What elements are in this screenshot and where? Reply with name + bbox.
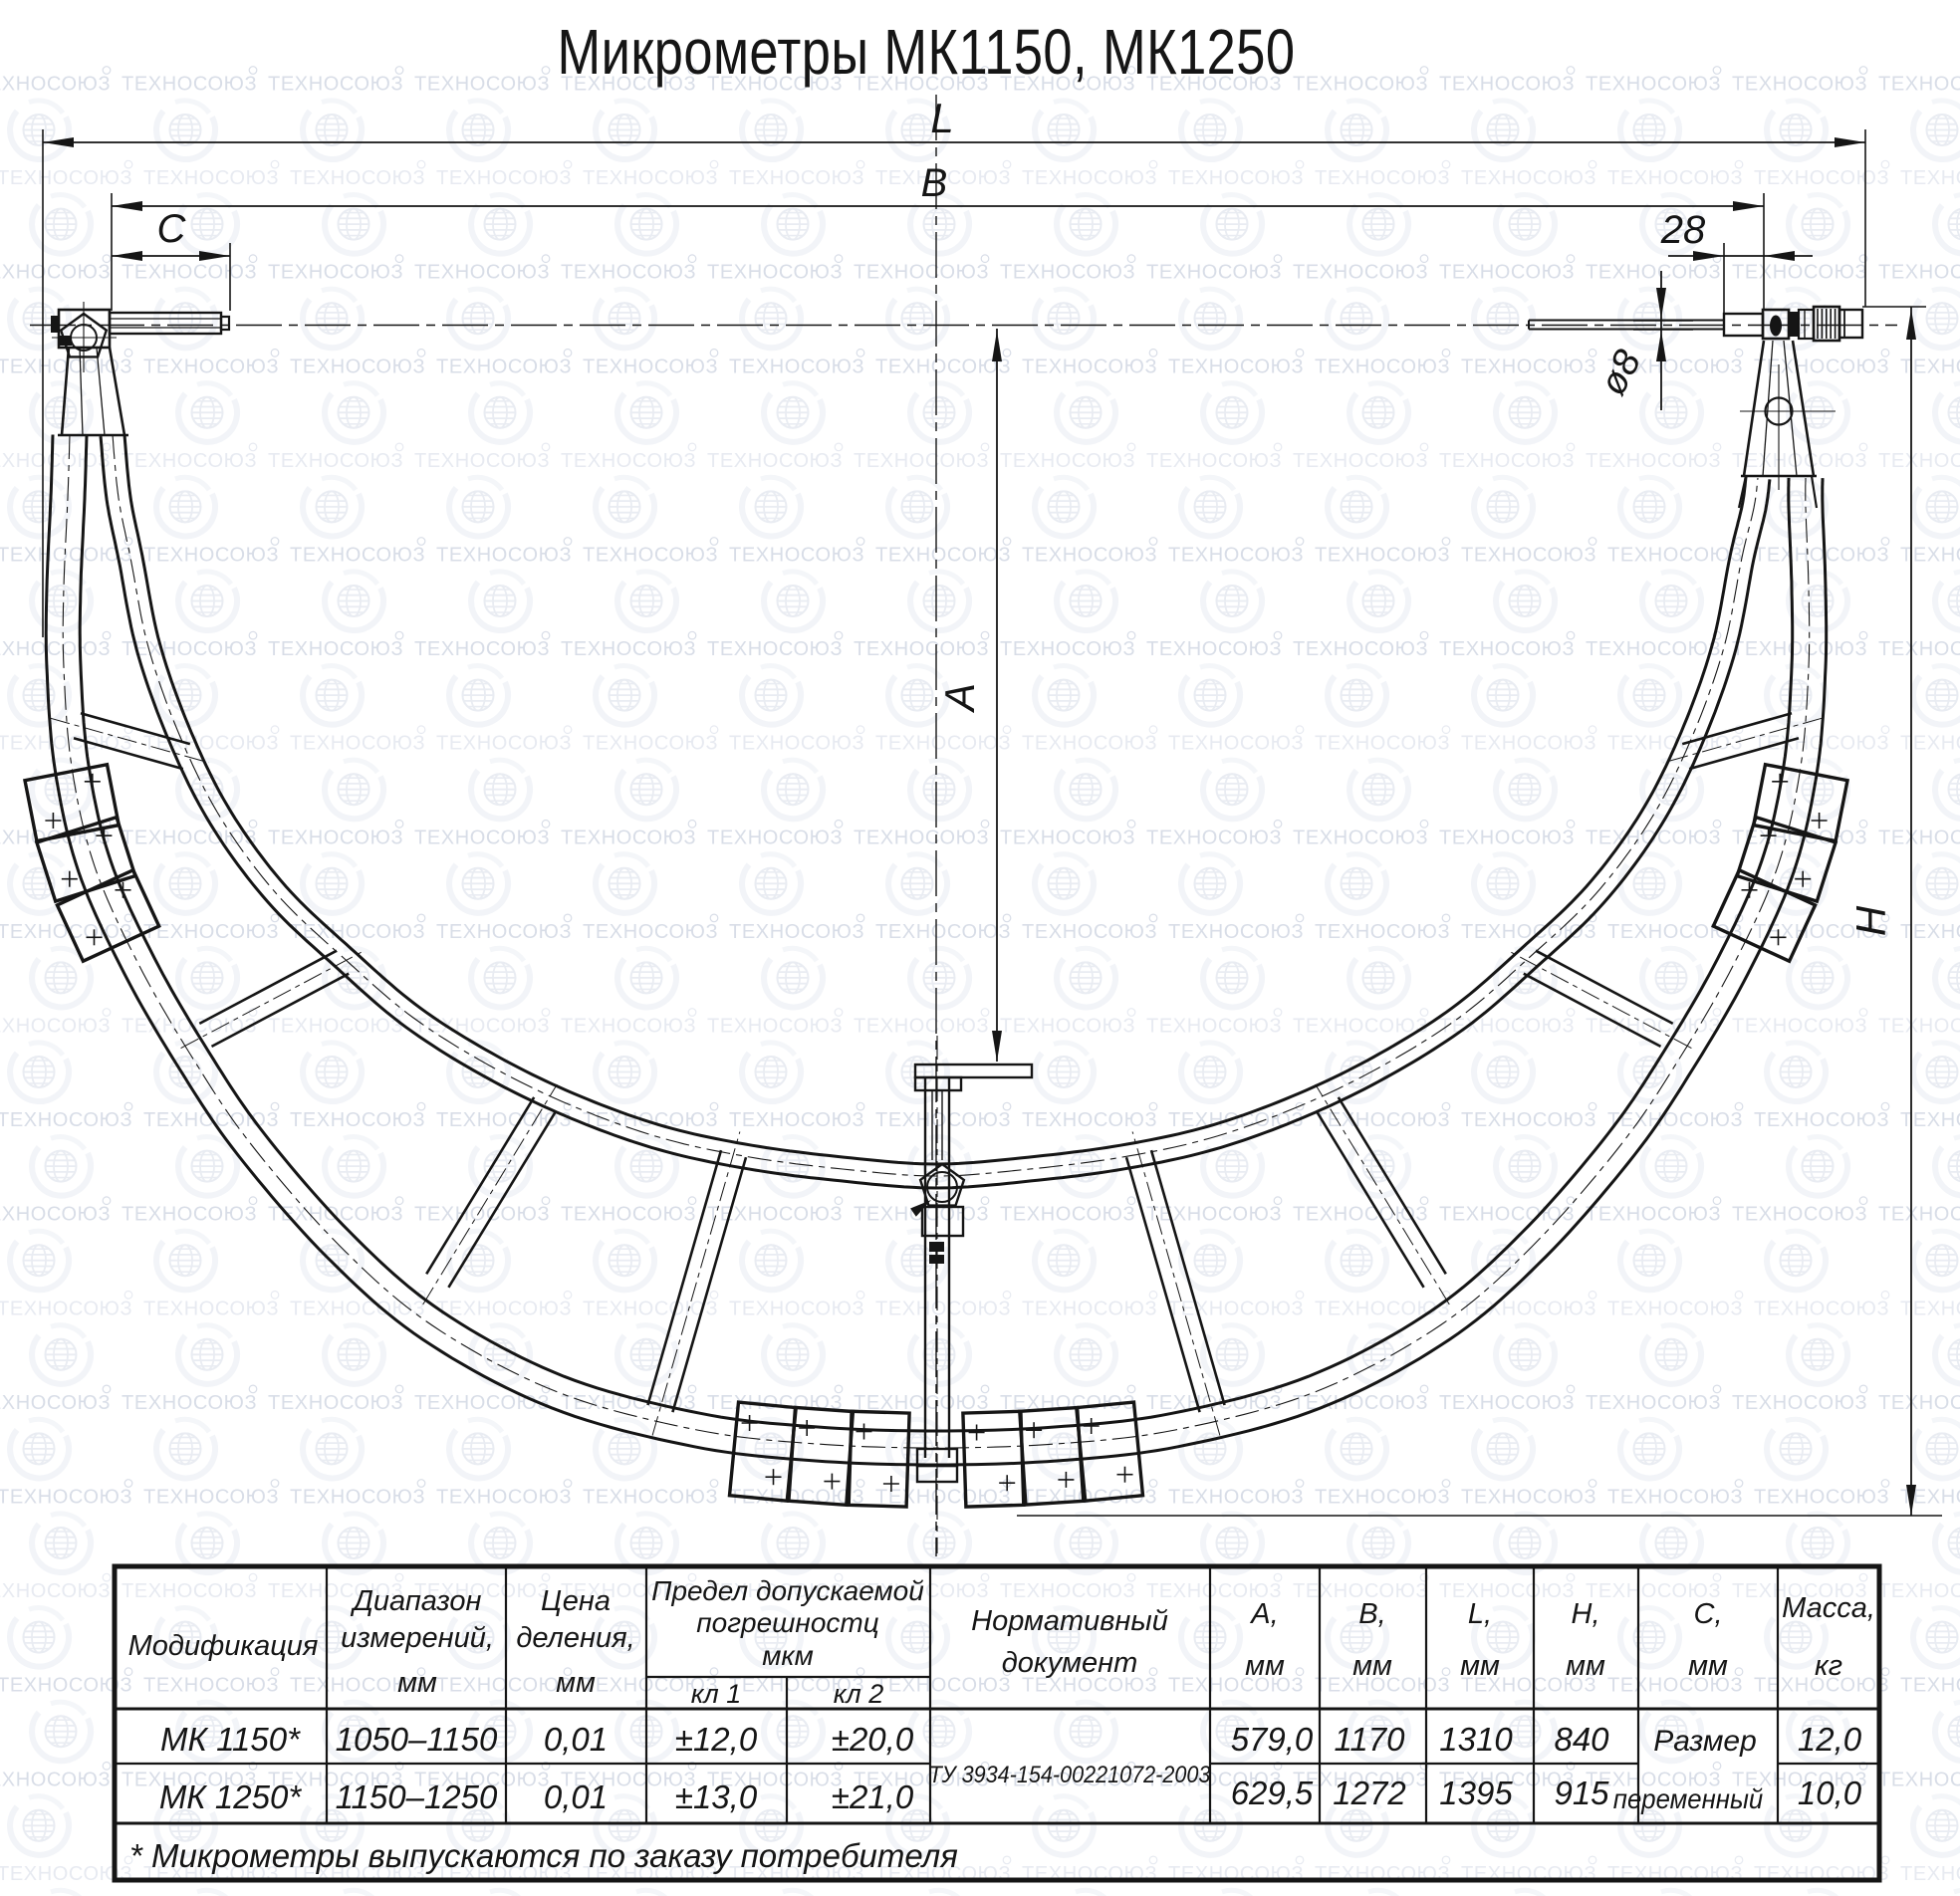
svg-text:ТЕХНОСОЮЗ: ТЕХНОСОЮЗ <box>0 1392 111 1414</box>
svg-text:ТЕХНОСОЮЗ: ТЕХНОСОЮЗ <box>1293 1204 1428 1226</box>
svg-text:ТЕХНОСОЮЗ: ТЕХНОСОЮЗ <box>1900 733 1960 755</box>
svg-text:ТЕХНОСОЮЗ: ТЕХНОСОЮЗ <box>1732 1016 1867 1038</box>
svg-text:ТЕХНОСОЮЗ: ТЕХНОСОЮЗ <box>1461 355 1596 377</box>
svg-text:ТЕХНОСОЮЗ: ТЕХНОСОЮЗ <box>1461 545 1596 567</box>
svg-text:ТЕХНОСОЮЗ: ТЕХНОСОЮЗ <box>1000 1580 1135 1602</box>
svg-text:ТЕХНОСОЮЗ: ТЕХНОСОЮЗ <box>1168 167 1304 189</box>
svg-text:ТЕХНОСОЮЗ: ТЕХНОСОЮЗ <box>1878 74 1960 96</box>
svg-text:915: 915 <box>1554 1775 1609 1811</box>
svg-text:ТЕХНОСОЮЗ: ТЕХНОСОЮЗ <box>1461 167 1596 189</box>
svg-text:ТУ 3934-154-00221072-2003: ТУ 3934-154-00221072-2003 <box>929 1761 1211 1787</box>
svg-text:ТЕХНОСОЮЗ: ТЕХНОСОЮЗ <box>414 450 550 472</box>
svg-text:ТЕХНОСОЮЗ: ТЕХНОСОЮЗ <box>290 1487 425 1509</box>
svg-text:1170: 1170 <box>1335 1721 1406 1758</box>
svg-text:Микрометры МК1150, МК1250: Микрометры МК1150, МК1250 <box>558 17 1296 88</box>
svg-text:ТЕХНОСОЮЗ: ТЕХНОСОЮЗ <box>0 1487 132 1509</box>
svg-text:ТЕХНОСОЮЗ: ТЕХНОСОЮЗ <box>1878 1769 1960 1790</box>
svg-text:ТЕХНОСОЮЗ: ТЕХНОСОЮЗ <box>143 355 279 377</box>
svg-text:ТЕХНОСОЮЗ: ТЕХНОСОЮЗ <box>122 1580 257 1602</box>
svg-text:ТЕХНОСОЮЗ: ТЕХНОСОЮЗ <box>854 450 989 472</box>
svg-text:ТЕХНОСОЮЗ: ТЕХНОСОЮЗ <box>1022 1298 1157 1319</box>
svg-text:ТЕХНОСОЮЗ: ТЕХНОСОЮЗ <box>729 1298 864 1319</box>
svg-text:ТЕХНОСОЮЗ: ТЕХНОСОЮЗ <box>0 1016 111 1038</box>
svg-text:ТЕХНОСОЮЗ: ТЕХНОСОЮЗ <box>561 638 696 660</box>
svg-text:мм: мм <box>556 1667 596 1699</box>
svg-text:ТЕХНОСОЮЗ: ТЕХНОСОЮЗ <box>0 733 132 755</box>
svg-text:ТЕХНОСОЮЗ: ТЕХНОСОЮЗ <box>1878 1016 1960 1038</box>
svg-text:мкм: мкм <box>762 1640 814 1671</box>
svg-text:ТЕХНОСОЮЗ: ТЕХНОСОЮЗ <box>1878 262 1960 284</box>
svg-text:ТЕХНОСОЮЗ: ТЕХНОСОЮЗ <box>1439 74 1575 96</box>
svg-text:ТЕХНОСОЮЗ: ТЕХНОСОЮЗ <box>290 1298 425 1319</box>
svg-text:ТЕХНОСОЮЗ: ТЕХНОСОЮЗ <box>0 1109 132 1131</box>
svg-text:кл 2: кл 2 <box>834 1679 884 1709</box>
svg-text:ТЕХНОСОЮЗ: ТЕХНОСОЮЗ <box>1878 450 1960 472</box>
svg-text:±21,0: ±21,0 <box>832 1778 914 1815</box>
svg-text:ТЕХНОСОЮЗ: ТЕХНОСОЮЗ <box>1586 450 1721 472</box>
svg-text:ТЕХНОСОЮЗ: ТЕХНОСОЮЗ <box>1146 638 1282 660</box>
svg-text:Предел допускаемой: Предел допускаемой <box>651 1575 924 1606</box>
svg-text:L,: L, <box>1468 1598 1492 1630</box>
svg-text:ТЕХНОСОЮЗ: ТЕХНОСОЮЗ <box>436 1487 572 1509</box>
svg-text:L: L <box>930 95 953 141</box>
svg-text:погрешностц: погрешностц <box>696 1607 879 1638</box>
svg-text:ТЕХНОСОЮЗ: ТЕХНОСОЮЗ <box>1168 545 1304 567</box>
svg-text:ТЕХНОСОЮЗ: ТЕХНОСОЮЗ <box>729 545 864 567</box>
svg-text:документ: документ <box>1002 1647 1137 1679</box>
svg-text:Цена: Цена <box>541 1585 611 1617</box>
svg-text:ТЕХНОСОЮЗ: ТЕХНОСОЮЗ <box>143 921 279 943</box>
svg-text:ТЕХНОСОЮЗ: ТЕХНОСОЮЗ <box>268 262 403 284</box>
svg-text:ТЕХНОСОЮЗ: ТЕХНОСОЮЗ <box>1315 1109 1450 1131</box>
svg-text:ТЕХНОСОЮЗ: ТЕХНОСОЮЗ <box>436 167 572 189</box>
svg-text:±12,0: ±12,0 <box>675 1721 758 1758</box>
svg-text:ТЕХНОСОЮЗ: ТЕХНОСОЮЗ <box>1022 733 1157 755</box>
svg-text:ТЕХНОСОЮЗ: ТЕХНОСОЮЗ <box>583 921 718 943</box>
svg-text:ТЕХНОСОЮЗ: ТЕХНОСОЮЗ <box>1461 1109 1596 1131</box>
svg-text:ТЕХНОСОЮЗ: ТЕХНОСОЮЗ <box>854 638 989 660</box>
svg-text:28: 28 <box>1660 208 1706 252</box>
svg-text:ТЕХНОСОЮЗ: ТЕХНОСОЮЗ <box>436 733 572 755</box>
svg-text:Диапазон: Диапазон <box>350 1585 481 1617</box>
svg-text:ТЕХНОСОЮЗ: ТЕХНОСОЮЗ <box>1315 1487 1450 1509</box>
svg-text:ТЕХНОСОЮЗ: ТЕХНОСОЮЗ <box>1000 450 1135 472</box>
svg-text:ТЕХНОСОЮЗ: ТЕХНОСОЮЗ <box>1878 1580 1960 1602</box>
svg-text:ТЕХНОСОЮЗ: ТЕХНОСОЮЗ <box>1293 1016 1428 1038</box>
svg-text:ТЕХНОСОЮЗ: ТЕХНОСОЮЗ <box>1146 1016 1282 1038</box>
svg-text:ТЕХНОСОЮЗ: ТЕХНОСОЮЗ <box>1878 827 1960 848</box>
svg-text:ТЕХНОСОЮЗ: ТЕХНОСОЮЗ <box>1168 1298 1304 1319</box>
svg-text:ТЕХНОСОЮЗ: ТЕХНОСОЮЗ <box>122 827 257 848</box>
svg-text:ТЕХНОСОЮЗ: ТЕХНОСОЮЗ <box>1315 167 1450 189</box>
svg-text:ТЕХНОСОЮЗ: ТЕХНОСОЮЗ <box>1878 638 1960 660</box>
svg-text:ТЕХНОСОЮЗ: ТЕХНОСОЮЗ <box>122 1392 257 1414</box>
svg-text:ТЕХНОСОЮЗ: ТЕХНОСОЮЗ <box>729 733 864 755</box>
svg-text:ТЕХНОСОЮЗ: ТЕХНОСОЮЗ <box>414 827 550 848</box>
svg-text:ТЕХНОСОЮЗ: ТЕХНОСОЮЗ <box>1439 1392 1575 1414</box>
svg-text:ТЕХНОСОЮЗ: ТЕХНОСОЮЗ <box>1022 921 1157 943</box>
svg-text:ТЕХНОСОЮЗ: ТЕХНОСОЮЗ <box>1439 1580 1575 1602</box>
svg-text:ТЕХНОСОЮЗ: ТЕХНОСОЮЗ <box>268 450 403 472</box>
svg-text:ТЕХНОСОЮЗ: ТЕХНОСОЮЗ <box>143 1487 279 1509</box>
svg-text:ТЕХНОСОЮЗ: ТЕХНОСОЮЗ <box>1732 1204 1867 1226</box>
svg-text:ТЕХНОСОЮЗ: ТЕХНОСОЮЗ <box>1732 1392 1867 1414</box>
svg-text:ТЕХНОСОЮЗ: ТЕХНОСОЮЗ <box>875 733 1011 755</box>
svg-text:ТЕХНОСОЮЗ: ТЕХНОСОЮЗ <box>1900 355 1960 377</box>
svg-text:ТЕХНОСОЮЗ: ТЕХНОСОЮЗ <box>1607 545 1743 567</box>
svg-text:ТЕХНОСОЮЗ: ТЕХНОСОЮЗ <box>0 74 111 96</box>
svg-text:ТЕХНОСОЮЗ: ТЕХНОСОЮЗ <box>854 1016 989 1038</box>
svg-text:ТЕХНОСОЮЗ: ТЕХНОСОЮЗ <box>561 827 696 848</box>
svg-text:ТЕХНОСОЮЗ: ТЕХНОСОЮЗ <box>707 1016 843 1038</box>
svg-text:12,0: 12,0 <box>1798 1721 1862 1758</box>
svg-text:ТЕХНОСОЮЗ: ТЕХНОСОЮЗ <box>561 262 696 284</box>
svg-text:МК 1250*: МК 1250* <box>159 1778 303 1815</box>
svg-text:ТЕХНОСОЮЗ: ТЕХНОСОЮЗ <box>1168 355 1304 377</box>
svg-text:С,: С, <box>1694 1598 1723 1630</box>
svg-text:ТЕХНОСОЮЗ: ТЕХНОСОЮЗ <box>1586 638 1721 660</box>
svg-text:ТЕХНОСОЮЗ: ТЕХНОСОЮЗ <box>583 1298 718 1319</box>
svg-text:ТЕХНОСОЮЗ: ТЕХНОСОЮЗ <box>1878 1204 1960 1226</box>
svg-text:* Микрометры выпускаются по: * Микрометры выпускаются по заказу потре… <box>129 1837 958 1874</box>
svg-text:мм: мм <box>1688 1650 1728 1682</box>
svg-text:ТЕХНОСОЮЗ: ТЕХНОСОЮЗ <box>707 638 843 660</box>
svg-text:ТЕХНОСОЮЗ: ТЕХНОСОЮЗ <box>583 1109 718 1131</box>
svg-text:ТЕХНОСОЮЗ: ТЕХНОСОЮЗ <box>0 1580 111 1602</box>
svg-text:ТЕХНОСОЮЗ: ТЕХНОСОЮЗ <box>1293 827 1428 848</box>
svg-text:1310: 1310 <box>1439 1721 1513 1758</box>
svg-text:переменный: переменный <box>1613 1783 1763 1814</box>
svg-text:ТЕХНОСОЮЗ: ТЕХНОСОЮЗ <box>561 1016 696 1038</box>
svg-text:ТЕХНОСОЮЗ: ТЕХНОСОЮЗ <box>1439 1204 1575 1226</box>
svg-text:ТЕХНОСОЮЗ: ТЕХНОСОЮЗ <box>1439 262 1575 284</box>
svg-text:ТЕХНОСОЮЗ: ТЕХНОСОЮЗ <box>290 545 425 567</box>
svg-text:ТЕХНОСОЮЗ: ТЕХНОСОЮЗ <box>1900 1675 1960 1697</box>
svg-text:ТЕХНОСОЮЗ: ТЕХНОСОЮЗ <box>1586 1392 1721 1414</box>
svg-text:ТЕХНОСОЮЗ: ТЕХНОСОЮЗ <box>1900 1298 1960 1319</box>
svg-text:А,: А, <box>1249 1598 1278 1630</box>
svg-text:ТЕХНОСОЮЗ: ТЕХНОСОЮЗ <box>1022 167 1157 189</box>
svg-text:840: 840 <box>1554 1721 1609 1758</box>
svg-text:ТЕХНОСОЮЗ: ТЕХНОСОЮЗ <box>1146 450 1282 472</box>
svg-text:ТЕХНОСОЮЗ: ТЕХНОСОЮЗ <box>1022 355 1157 377</box>
svg-text:10,0: 10,0 <box>1798 1775 1862 1811</box>
svg-text:мм: мм <box>1352 1650 1392 1682</box>
svg-text:кл 1: кл 1 <box>691 1679 742 1709</box>
svg-text:0,01: 0,01 <box>544 1778 608 1815</box>
svg-text:ТЕХНОСОЮЗ: ТЕХНОСОЮЗ <box>583 167 718 189</box>
svg-text:деления,: деления, <box>516 1622 634 1654</box>
svg-text:ТЕХНОСОЮЗ: ТЕХНОСОЮЗ <box>143 545 279 567</box>
svg-text:ТЕХНОСОЮЗ: ТЕХНОСОЮЗ <box>268 638 403 660</box>
svg-text:ТЕХНОСОЮЗ: ТЕХНОСОЮЗ <box>1168 921 1304 943</box>
svg-text:ТЕХНОСОЮЗ: ТЕХНОСОЮЗ <box>583 1487 718 1509</box>
svg-text:629,5: 629,5 <box>1231 1775 1314 1811</box>
svg-text:ТЕХНОСОЮЗ: ТЕХНОСОЮЗ <box>0 167 132 189</box>
svg-text:ТЕХНОСОЮЗ: ТЕХНОСОЮЗ <box>143 167 279 189</box>
svg-text:±20,0: ±20,0 <box>832 1721 914 1758</box>
svg-text:В,: В, <box>1358 1598 1385 1630</box>
svg-text:ТЕХНОСОЮЗ: ТЕХНОСОЮЗ <box>1293 262 1428 284</box>
svg-text:ТЕХНОСОЮЗ: ТЕХНОСОЮЗ <box>1022 1109 1157 1131</box>
svg-text:В: В <box>921 161 948 205</box>
svg-text:ТЕХНОСОЮЗ: ТЕХНОСОЮЗ <box>414 1392 550 1414</box>
svg-text:ТЕХНОСОЮЗ: ТЕХНОСОЮЗ <box>1754 167 1889 189</box>
svg-text:мм: мм <box>1245 1650 1285 1682</box>
svg-text:ТЕХНОСОЮЗ: ТЕХНОСОЮЗ <box>1586 262 1721 284</box>
svg-text:ТЕХНОСОЮЗ: ТЕХНОСОЮЗ <box>1439 638 1575 660</box>
svg-text:ТЕХНОСОЮЗ: ТЕХНОСОЮЗ <box>0 262 111 284</box>
svg-text:ТЕХНОСОЮЗ: ТЕХНОСОЮЗ <box>1000 827 1135 848</box>
svg-text:ТЕХНОСОЮЗ: ТЕХНОСОЮЗ <box>1022 545 1157 567</box>
svg-text:ТЕХНОСОЮЗ: ТЕХНОСОЮЗ <box>0 545 132 567</box>
svg-text:ТЕХНОСОЮЗ: ТЕХНОСОЮЗ <box>1461 733 1596 755</box>
svg-text:ТЕХНОСОЮЗ: ТЕХНОСОЮЗ <box>1293 450 1428 472</box>
svg-text:ТЕХНОСОЮЗ: ТЕХНОСОЮЗ <box>290 355 425 377</box>
svg-text:ТЕХНОСОЮЗ: ТЕХНОСОЮЗ <box>414 74 550 96</box>
svg-text:ТЕХНОСОЮЗ: ТЕХНОСОЮЗ <box>1732 638 1867 660</box>
svg-text:Масса,: Масса, <box>1782 1592 1875 1624</box>
svg-text:ТЕХНОСОЮЗ: ТЕХНОСОЮЗ <box>0 450 111 472</box>
svg-text:ТЕХНОСОЮЗ: ТЕХНОСОЮЗ <box>875 1298 1011 1319</box>
svg-text:ТЕХНОСОЮЗ: ТЕХНОСОЮЗ <box>1315 921 1450 943</box>
svg-text:ТЕХНОСОЮЗ: ТЕХНОСОЮЗ <box>875 921 1011 943</box>
svg-text:1395: 1395 <box>1439 1775 1513 1811</box>
svg-text:ТЕХНОСОЮЗ: ТЕХНОСОЮЗ <box>1900 1863 1960 1885</box>
svg-text:ТЕХНОСОЮЗ: ТЕХНОСОЮЗ <box>0 638 111 660</box>
svg-text:Размер: Размер <box>1653 1725 1757 1758</box>
svg-text:ТЕХНОСОЮЗ: ТЕХНОСОЮЗ <box>583 355 718 377</box>
svg-text:ТЕХНОСОЮЗ: ТЕХНОСОЮЗ <box>1754 545 1889 567</box>
svg-text:ТЕХНОСОЮЗ: ТЕХНОСОЮЗ <box>875 1109 1011 1131</box>
svg-text:ТЕХНОСОЮЗ: ТЕХНОСОЮЗ <box>0 1298 132 1319</box>
svg-text:ТЕХНОСОЮЗ: ТЕХНОСОЮЗ <box>0 1204 111 1226</box>
svg-text:мм: мм <box>1460 1650 1500 1682</box>
svg-text:ТЕХНОСОЮЗ: ТЕХНОСОЮЗ <box>1586 74 1721 96</box>
svg-text:ТЕХНОСОЮЗ: ТЕХНОСОЮЗ <box>1900 545 1960 567</box>
svg-text:измерений,: измерений, <box>341 1622 494 1654</box>
svg-text:ТЕХНОСОЮЗ: ТЕХНОСОЮЗ <box>583 733 718 755</box>
svg-text:0,01: 0,01 <box>544 1721 608 1758</box>
svg-text:Модификация: Модификация <box>128 1630 319 1662</box>
svg-text:ТЕХНОСОЮЗ: ТЕХНОСОЮЗ <box>1000 262 1135 284</box>
svg-text:ТЕХНОСОЮЗ: ТЕХНОСОЮЗ <box>1732 450 1867 472</box>
svg-text:ТЕХНОСОЮЗ: ТЕХНОСОЮЗ <box>875 355 1011 377</box>
svg-text:ТЕХНОСОЮЗ: ТЕХНОСОЮЗ <box>1754 355 1889 377</box>
svg-text:ТЕХНОСОЮЗ: ТЕХНОСОЮЗ <box>290 1109 425 1131</box>
svg-text:ТЕХНОСОЮЗ: ТЕХНОСОЮЗ <box>1168 1487 1304 1509</box>
svg-text:ТЕХНОСОЮЗ: ТЕХНОСОЮЗ <box>1439 827 1575 848</box>
svg-text:ТЕХНОСОЮЗ: ТЕХНОСОЮЗ <box>436 1298 572 1319</box>
svg-text:ТЕХНОСОЮЗ: ТЕХНОСОЮЗ <box>1293 638 1428 660</box>
svg-text:ТЕХНОСОЮЗ: ТЕХНОСОЮЗ <box>1732 262 1867 284</box>
svg-text:ТЕХНОСОЮЗ: ТЕХНОСОЮЗ <box>729 921 864 943</box>
svg-text:ТЕХНОСОЮЗ: ТЕХНОСОЮЗ <box>854 262 989 284</box>
svg-text:579,0: 579,0 <box>1231 1721 1314 1758</box>
svg-text:ТЕХНОСОЮЗ: ТЕХНОСОЮЗ <box>854 827 989 848</box>
svg-text:С: С <box>157 207 187 251</box>
svg-text:ТЕХНОСОЮЗ: ТЕХНОСОЮЗ <box>1000 1016 1135 1038</box>
svg-text:ТЕХНОСОЮЗ: ТЕХНОСОЮЗ <box>122 262 257 284</box>
svg-text:МК 1150*: МК 1150* <box>160 1721 301 1758</box>
svg-text:ТЕХНОСОЮЗ: ТЕХНОСОЮЗ <box>1754 1109 1889 1131</box>
svg-text:ТЕХНОСОЮЗ: ТЕХНОСОЮЗ <box>1146 262 1282 284</box>
svg-text:ТЕХНОСОЮЗ: ТЕХНОСОЮЗ <box>414 262 550 284</box>
svg-text:ТЕХНОСОЮЗ: ТЕХНОСОЮЗ <box>290 167 425 189</box>
svg-text:1150–1250: 1150–1250 <box>336 1778 498 1815</box>
svg-text:ТЕХНОСОЮЗ: ТЕХНОСОЮЗ <box>1439 450 1575 472</box>
svg-text:ТЕХНОСОЮЗ: ТЕХНОСОЮЗ <box>1607 1298 1743 1319</box>
svg-text:ТЕХНОСОЮЗ: ТЕХНОСОЮЗ <box>122 450 257 472</box>
svg-text:ТЕХНОСОЮЗ: ТЕХНОСОЮЗ <box>268 1016 403 1038</box>
svg-text:кг: кг <box>1815 1650 1842 1682</box>
svg-text:ТЕХНОСОЮЗ: ТЕХНОСОЮЗ <box>875 545 1011 567</box>
svg-text:ТЕХНОСОЮЗ: ТЕХНОСОЮЗ <box>122 74 257 96</box>
svg-text:ТЕХНОСОЮЗ: ТЕХНОСОЮЗ <box>561 1204 696 1226</box>
svg-text:Н,: Н, <box>1572 1598 1600 1630</box>
svg-text:ТЕХНОСОЮЗ: ТЕХНОСОЮЗ <box>729 355 864 377</box>
svg-text:ТЕХНОСОЮЗ: ТЕХНОСОЮЗ <box>707 827 843 848</box>
svg-text:ТЕХНОСОЮЗ: ТЕХНОСОЮЗ <box>1315 733 1450 755</box>
svg-text:ТЕХНОСОЮЗ: ТЕХНОСОЮЗ <box>707 262 843 284</box>
svg-text:ТЕХНОСОЮЗ: ТЕХНОСОЮЗ <box>1293 74 1428 96</box>
svg-text:ТЕХНОСОЮЗ: ТЕХНОСОЮЗ <box>1168 733 1304 755</box>
svg-text:ТЕХНОСОЮЗ: ТЕХНОСОЮЗ <box>268 74 403 96</box>
svg-text:ТЕХНОСОЮЗ: ТЕХНОСОЮЗ <box>707 450 843 472</box>
svg-text:ТЕХНОСОЮЗ: ТЕХНОСОЮЗ <box>1315 355 1450 377</box>
svg-text:ТЕХНОСОЮЗ: ТЕХНОСОЮЗ <box>729 167 864 189</box>
svg-text:ТЕХНОСОЮЗ: ТЕХНОСОЮЗ <box>1607 1109 1743 1131</box>
svg-text:ТЕХНОСОЮЗ: ТЕХНОСОЮЗ <box>436 1675 572 1697</box>
svg-text:ТЕХНОСОЮЗ: ТЕХНОСОЮЗ <box>268 827 403 848</box>
svg-text:мм: мм <box>397 1667 437 1699</box>
svg-text:ТЕХНОСОЮЗ: ТЕХНОСОЮЗ <box>1461 1487 1596 1509</box>
svg-text:ТЕХНОСОЮЗ: ТЕХНОСОЮЗ <box>583 545 718 567</box>
svg-text:ТЕХНОСОЮЗ: ТЕХНОСОЮЗ <box>290 921 425 943</box>
svg-text:ТЕХНОСОЮЗ: ТЕХНОСОЮЗ <box>436 545 572 567</box>
svg-text:1050–1150: 1050–1150 <box>336 1721 498 1758</box>
svg-text:ТЕХНОСОЮЗ: ТЕХНОСОЮЗ <box>1000 638 1135 660</box>
svg-text:ТЕХНОСОЮЗ: ТЕХНОСОЮЗ <box>1900 167 1960 189</box>
svg-text:Н: Н <box>1847 905 1894 936</box>
svg-text:ТЕХНОСОЮЗ: ТЕХНОСОЮЗ <box>1754 1298 1889 1319</box>
svg-text:мм: мм <box>1566 1650 1605 1682</box>
svg-text:ТЕХНОСОЮЗ: ТЕХНОСОЮЗ <box>1146 827 1282 848</box>
svg-text:А: А <box>936 683 983 714</box>
svg-text:Нормативный: Нормативный <box>971 1605 1168 1637</box>
svg-text:ТЕХНОСОЮЗ: ТЕХНОСОЮЗ <box>436 355 572 377</box>
svg-text:ТЕХНОСОЮЗ: ТЕХНОСОЮЗ <box>1315 1298 1450 1319</box>
svg-text:±13,0: ±13,0 <box>675 1778 758 1815</box>
svg-text:ТЕХНОСОЮЗ: ТЕХНОСОЮЗ <box>122 638 257 660</box>
svg-text:ТЕХНОСОЮЗ: ТЕХНОСОЮЗ <box>1900 1109 1960 1131</box>
svg-text:ТЕХНОСОЮЗ: ТЕХНОСОЮЗ <box>1586 1204 1721 1226</box>
svg-text:ТЕХНОСОЮЗ: ТЕХНОСОЮЗ <box>143 1675 279 1697</box>
svg-text:ТЕХНОСОЮЗ: ТЕХНОСОЮЗ <box>561 450 696 472</box>
svg-text:ТЕХНОСОЮЗ: ТЕХНОСОЮЗ <box>729 1109 864 1131</box>
svg-text:ТЕХНОСОЮЗ: ТЕХНОСОЮЗ <box>414 638 550 660</box>
svg-text:ТЕХНОСОЮЗ: ТЕХНОСОЮЗ <box>143 1298 279 1319</box>
svg-text:ТЕХНОСОЮЗ: ТЕХНОСОЮЗ <box>1607 167 1743 189</box>
svg-text:1272: 1272 <box>1333 1775 1405 1811</box>
svg-text:ТЕХНОСОЮЗ: ТЕХНОСОЮЗ <box>436 921 572 943</box>
svg-text:ТЕХНОСОЮЗ: ТЕХНОСОЮЗ <box>290 733 425 755</box>
svg-text:ТЕХНОСОЮЗ: ТЕХНОСОЮЗ <box>1000 1204 1135 1226</box>
svg-text:ТЕХНОСОЮЗ: ТЕХНОСОЮЗ <box>0 1769 111 1790</box>
svg-text:ТЕХНОСОЮЗ: ТЕХНОСОЮЗ <box>268 1392 403 1414</box>
svg-text:ТЕХНОСОЮЗ: ТЕХНОСОЮЗ <box>1315 545 1450 567</box>
svg-text:ТЕХНОСОЮЗ: ТЕХНОСОЮЗ <box>1900 921 1960 943</box>
svg-text:ТЕХНОСОЮЗ: ТЕХНОСОЮЗ <box>1754 1487 1889 1509</box>
svg-text:ТЕХНОСОЮЗ: ТЕХНОСОЮЗ <box>122 1204 257 1226</box>
svg-text:ТЕХНОСОЮЗ: ТЕХНОСОЮЗ <box>1732 74 1867 96</box>
svg-text:ТЕХНОСОЮЗ: ТЕХНОСОЮЗ <box>1878 1392 1960 1414</box>
svg-text:ТЕХНОСОЮЗ: ТЕХНОСОЮЗ <box>1607 1487 1743 1509</box>
